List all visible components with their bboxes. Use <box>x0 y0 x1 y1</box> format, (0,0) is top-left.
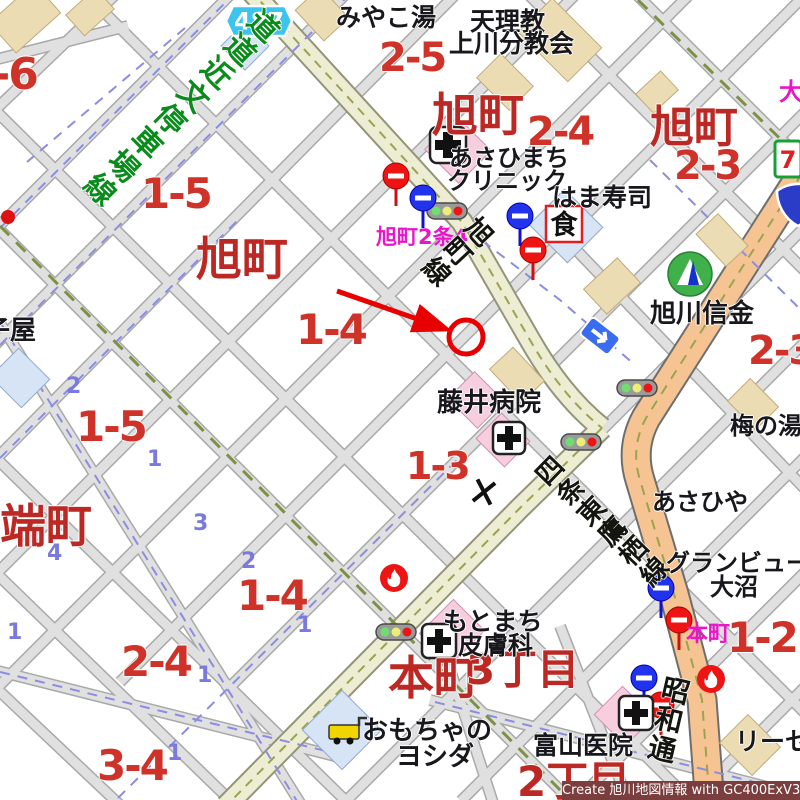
seven-eleven-icon: 7 <box>775 141 800 177</box>
traffic-light-icon <box>376 624 416 640</box>
hospital-cross-icon <box>493 422 525 454</box>
map-viewport[interactable]: 7 食 487 -61-52-52-42-31-41-51-32-31-42-4… <box>0 0 800 800</box>
fire-hydrant-icon <box>697 665 725 693</box>
restaurant-kanji: 食 <box>551 209 579 241</box>
boundary-red-dot-icon <box>1 210 15 224</box>
hospital-cross-icon <box>619 696 653 730</box>
fire-hydrant-icon <box>380 564 408 592</box>
traffic-light-icon <box>561 434 601 450</box>
map-canvas: 7 食 487 <box>0 0 800 800</box>
watermark: Create 旭川地図情報 with GC400ExV3 <box>562 781 800 800</box>
hospital-cross-icon <box>430 127 466 163</box>
bank-icon <box>668 252 712 296</box>
seven-eleven-7: 7 <box>780 146 797 174</box>
route-badge-487: 487 <box>226 6 292 36</box>
traffic-light-icon <box>617 380 657 396</box>
route-number: 487 <box>234 8 284 36</box>
restaurant-icon: 食 <box>546 206 582 242</box>
hospital-cross-icon <box>422 624 456 658</box>
